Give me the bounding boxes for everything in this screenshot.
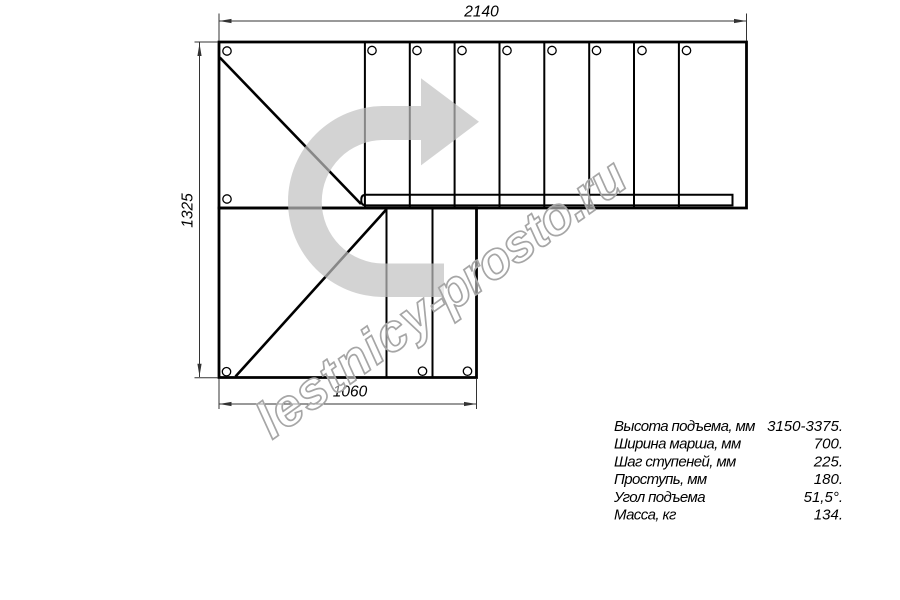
- svg-text:180.: 180.: [814, 471, 843, 488]
- svg-text:225.: 225.: [813, 453, 843, 470]
- svg-text:Масса, кг: Масса, кг: [614, 507, 677, 524]
- svg-text:Угол подъема: Угол подъема: [613, 489, 705, 506]
- svg-text:Ширина марша, мм: Ширина марша, мм: [614, 436, 741, 453]
- svg-text:3150-3375.: 3150-3375.: [767, 418, 843, 435]
- svg-text:Высота подъема, мм: Высота подъема, мм: [614, 418, 755, 435]
- svg-text:51,5°.: 51,5°.: [804, 489, 843, 506]
- svg-text:134.: 134.: [814, 507, 843, 524]
- svg-text:2140: 2140: [463, 4, 499, 21]
- svg-text:1325: 1325: [180, 193, 197, 228]
- svg-text:700.: 700.: [814, 436, 843, 453]
- svg-text:Шаг ступеней, мм: Шаг ступеней, мм: [614, 453, 736, 470]
- svg-text:Проступь, мм: Проступь, мм: [614, 471, 707, 488]
